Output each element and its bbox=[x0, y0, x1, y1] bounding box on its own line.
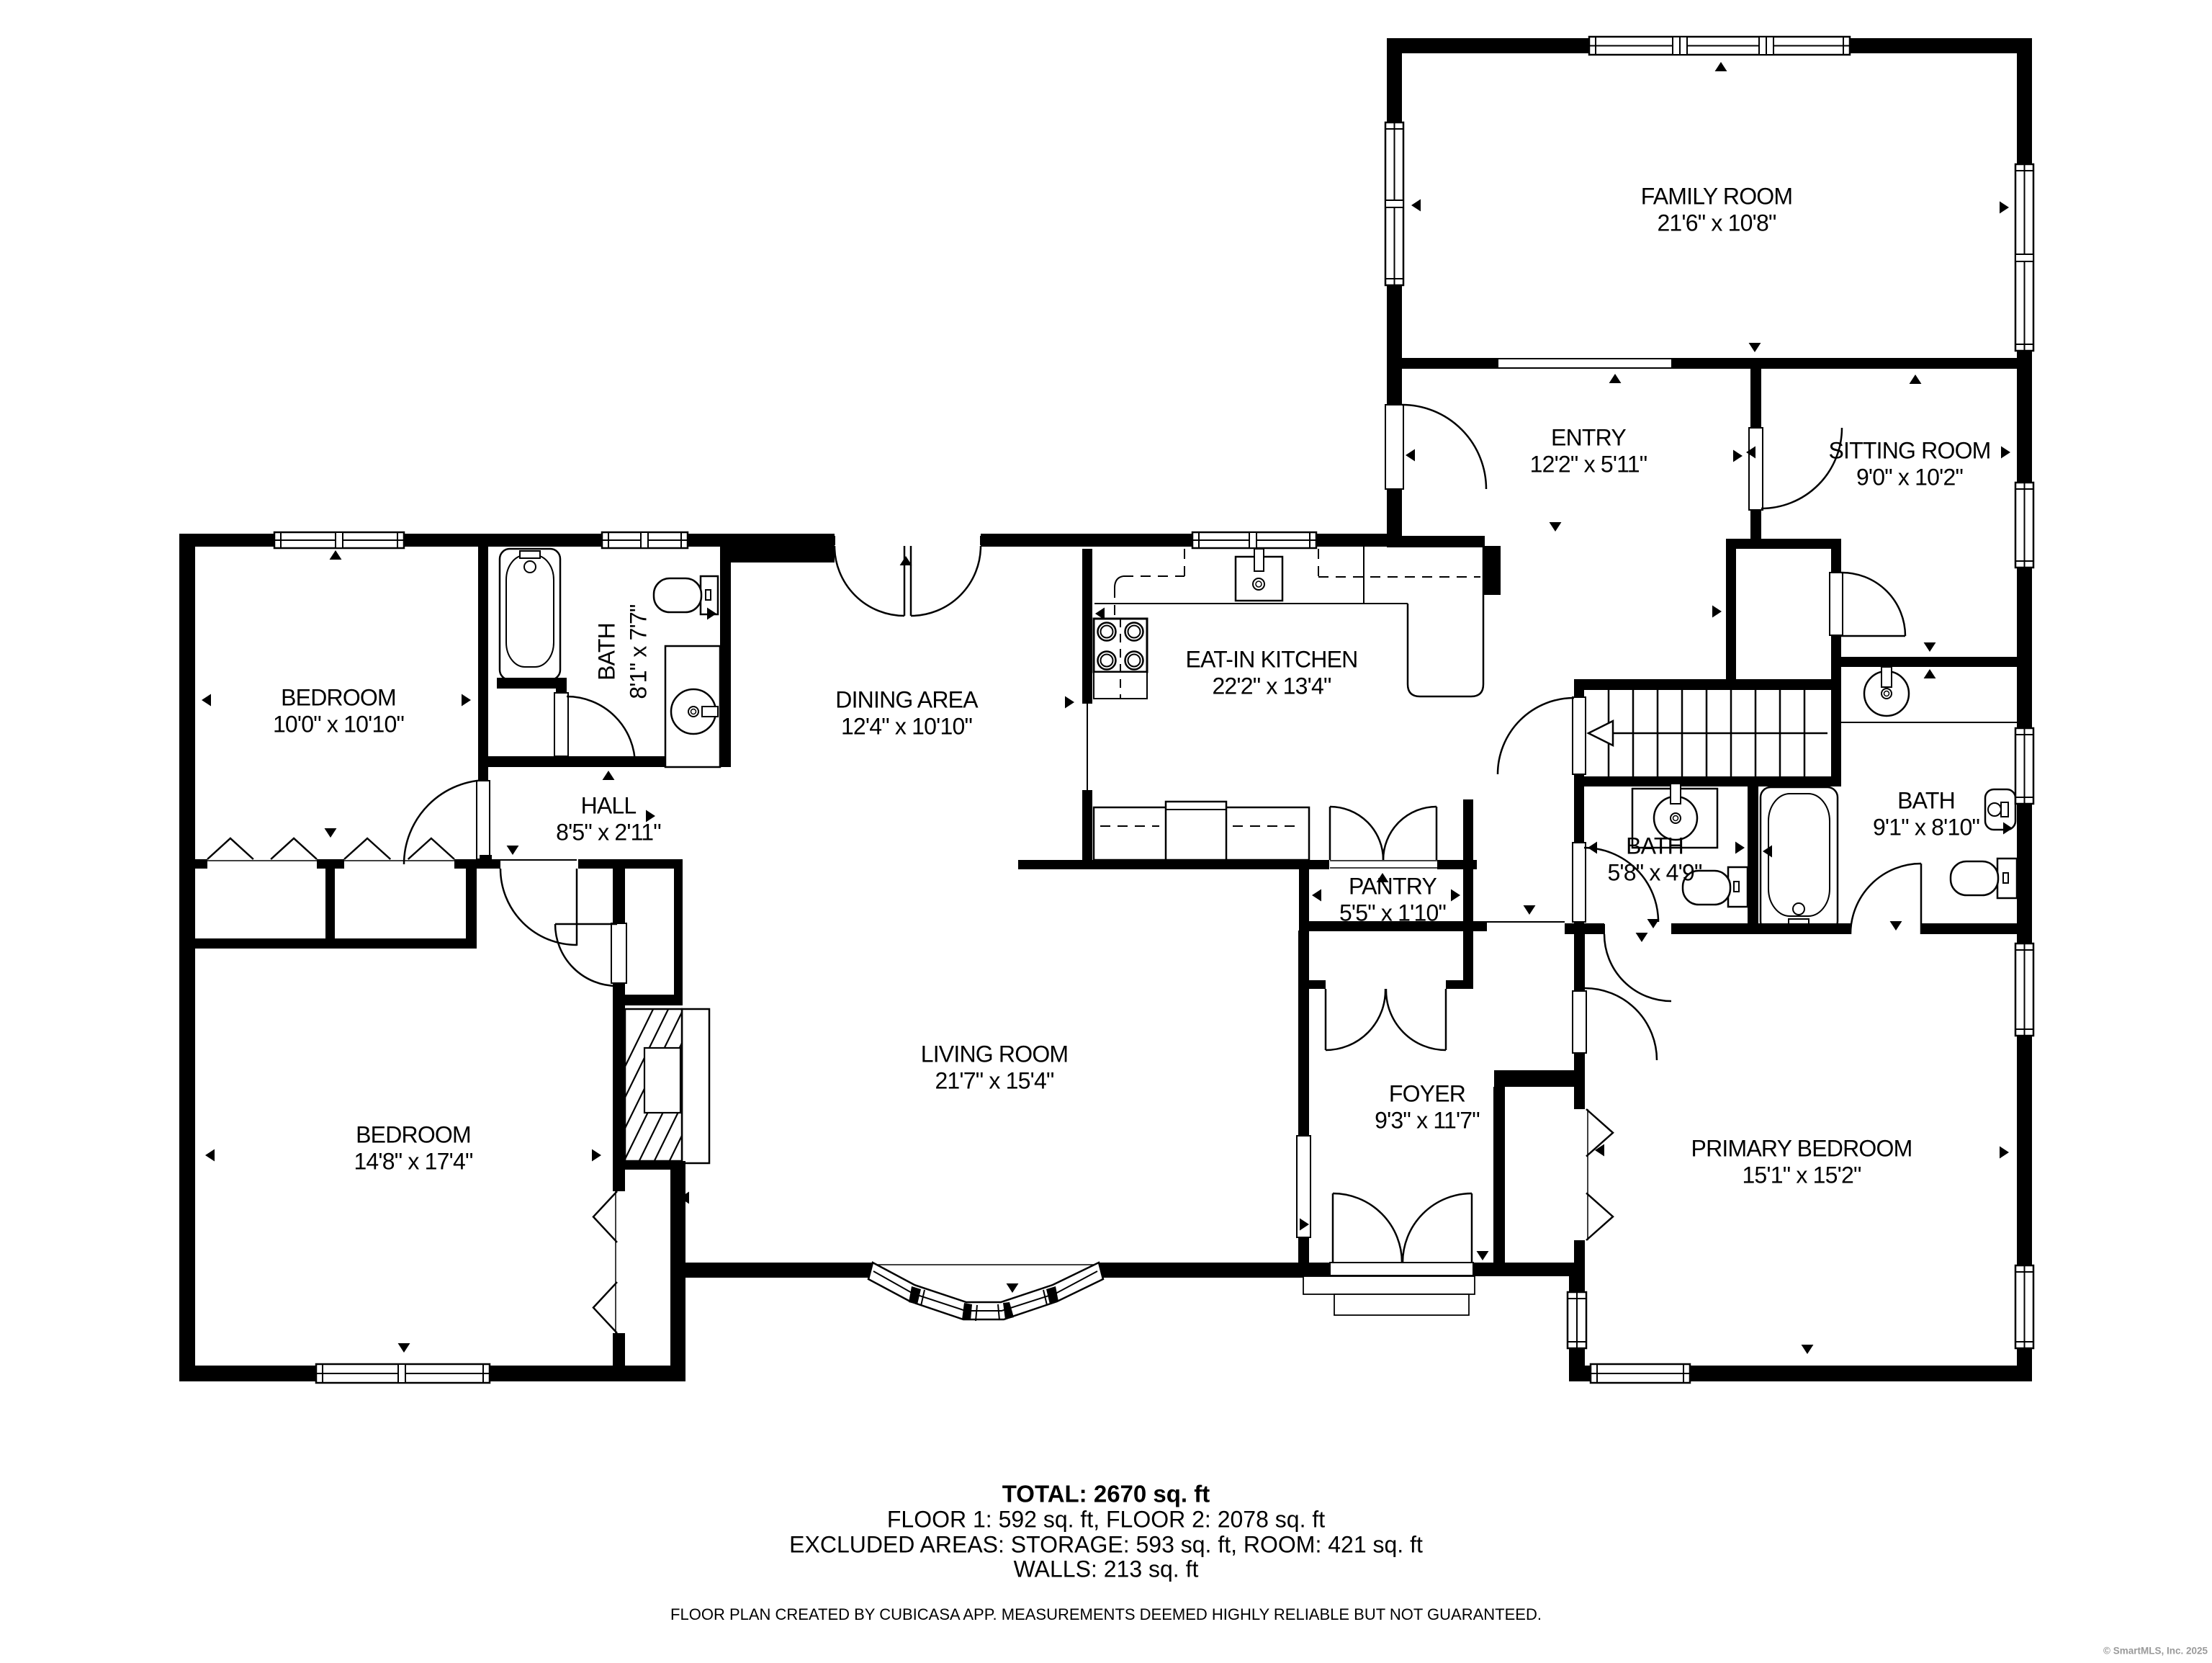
svg-text:14'8" x 17'4": 14'8" x 17'4" bbox=[354, 1148, 472, 1174]
svg-text:22'2" x 13'4": 22'2" x 13'4" bbox=[1212, 673, 1331, 699]
svg-text:BEDROOM: BEDROOM bbox=[356, 1121, 471, 1147]
svg-text:15'1" x 15'2": 15'1" x 15'2" bbox=[1742, 1162, 1861, 1188]
svg-text:BATH: BATH bbox=[1626, 833, 1683, 859]
svg-text:LIVING ROOM: LIVING ROOM bbox=[921, 1041, 1069, 1067]
svg-text:FLOOR PLAN CREATED BY CUBICASA: FLOOR PLAN CREATED BY CUBICASA APP. MEAS… bbox=[670, 1605, 1542, 1623]
svg-text:9'0" x 10'2": 9'0" x 10'2" bbox=[1856, 464, 1963, 490]
svg-text:9'3" x 11'7": 9'3" x 11'7" bbox=[1375, 1107, 1480, 1133]
svg-text:PANTRY: PANTRY bbox=[1349, 873, 1437, 899]
svg-text:FAMILY ROOM: FAMILY ROOM bbox=[1641, 183, 1793, 209]
svg-text:FOYER: FOYER bbox=[1389, 1080, 1465, 1106]
svg-text:10'0" x 10'10": 10'0" x 10'10" bbox=[273, 711, 404, 737]
svg-text:FLOOR 1: 592 sq. ft, FLOOR 2:: FLOOR 1: 592 sq. ft, FLOOR 2: 2078 sq. f… bbox=[887, 1506, 1325, 1532]
svg-text:EXCLUDED AREAS: STORAGE: 593 s: EXCLUDED AREAS: STORAGE: 593 sq. ft, ROO… bbox=[789, 1531, 1423, 1557]
svg-text:BEDROOM: BEDROOM bbox=[281, 684, 396, 710]
svg-text:TOTAL: 2670 sq. ft: TOTAL: 2670 sq. ft bbox=[1002, 1481, 1210, 1507]
svg-text:21'7" x 15'4": 21'7" x 15'4" bbox=[935, 1067, 1053, 1093]
svg-text:WALLS: 213 sq. ft: WALLS: 213 sq. ft bbox=[1014, 1556, 1199, 1582]
svg-text:9'1" x 8'10": 9'1" x 8'10" bbox=[1873, 814, 1979, 840]
svg-text:8'5" x 2'11": 8'5" x 2'11" bbox=[556, 819, 661, 845]
svg-text:PRIMARY BEDROOM: PRIMARY BEDROOM bbox=[1691, 1135, 1912, 1161]
svg-text:12'2" x 5'11": 12'2" x 5'11" bbox=[1530, 451, 1647, 477]
svg-text:5'8" x 4'9": 5'8" x 4'9" bbox=[1607, 859, 1701, 885]
svg-text:8'1" x 7'7": 8'1" x 7'7" bbox=[625, 604, 651, 699]
svg-text:EAT-IN KITCHEN: EAT-IN KITCHEN bbox=[1186, 646, 1358, 672]
svg-text:ENTRY: ENTRY bbox=[1551, 424, 1626, 450]
svg-text:SITTING ROOM: SITTING ROOM bbox=[1828, 437, 1990, 463]
svg-text:5'5" x 1'10": 5'5" x 1'10" bbox=[1339, 900, 1446, 925]
svg-text:BATH: BATH bbox=[1897, 787, 1955, 813]
svg-text:21'6" x 10'8": 21'6" x 10'8" bbox=[1657, 210, 1776, 236]
svg-text:HALL: HALL bbox=[581, 792, 637, 818]
svg-text:DINING AREA: DINING AREA bbox=[835, 686, 979, 712]
svg-text:BATH: BATH bbox=[593, 623, 619, 681]
svg-text:© SmartMLS, Inc. 2025: © SmartMLS, Inc. 2025 bbox=[2103, 1646, 2208, 1657]
svg-text:12'4" x 10'10": 12'4" x 10'10" bbox=[841, 713, 972, 739]
